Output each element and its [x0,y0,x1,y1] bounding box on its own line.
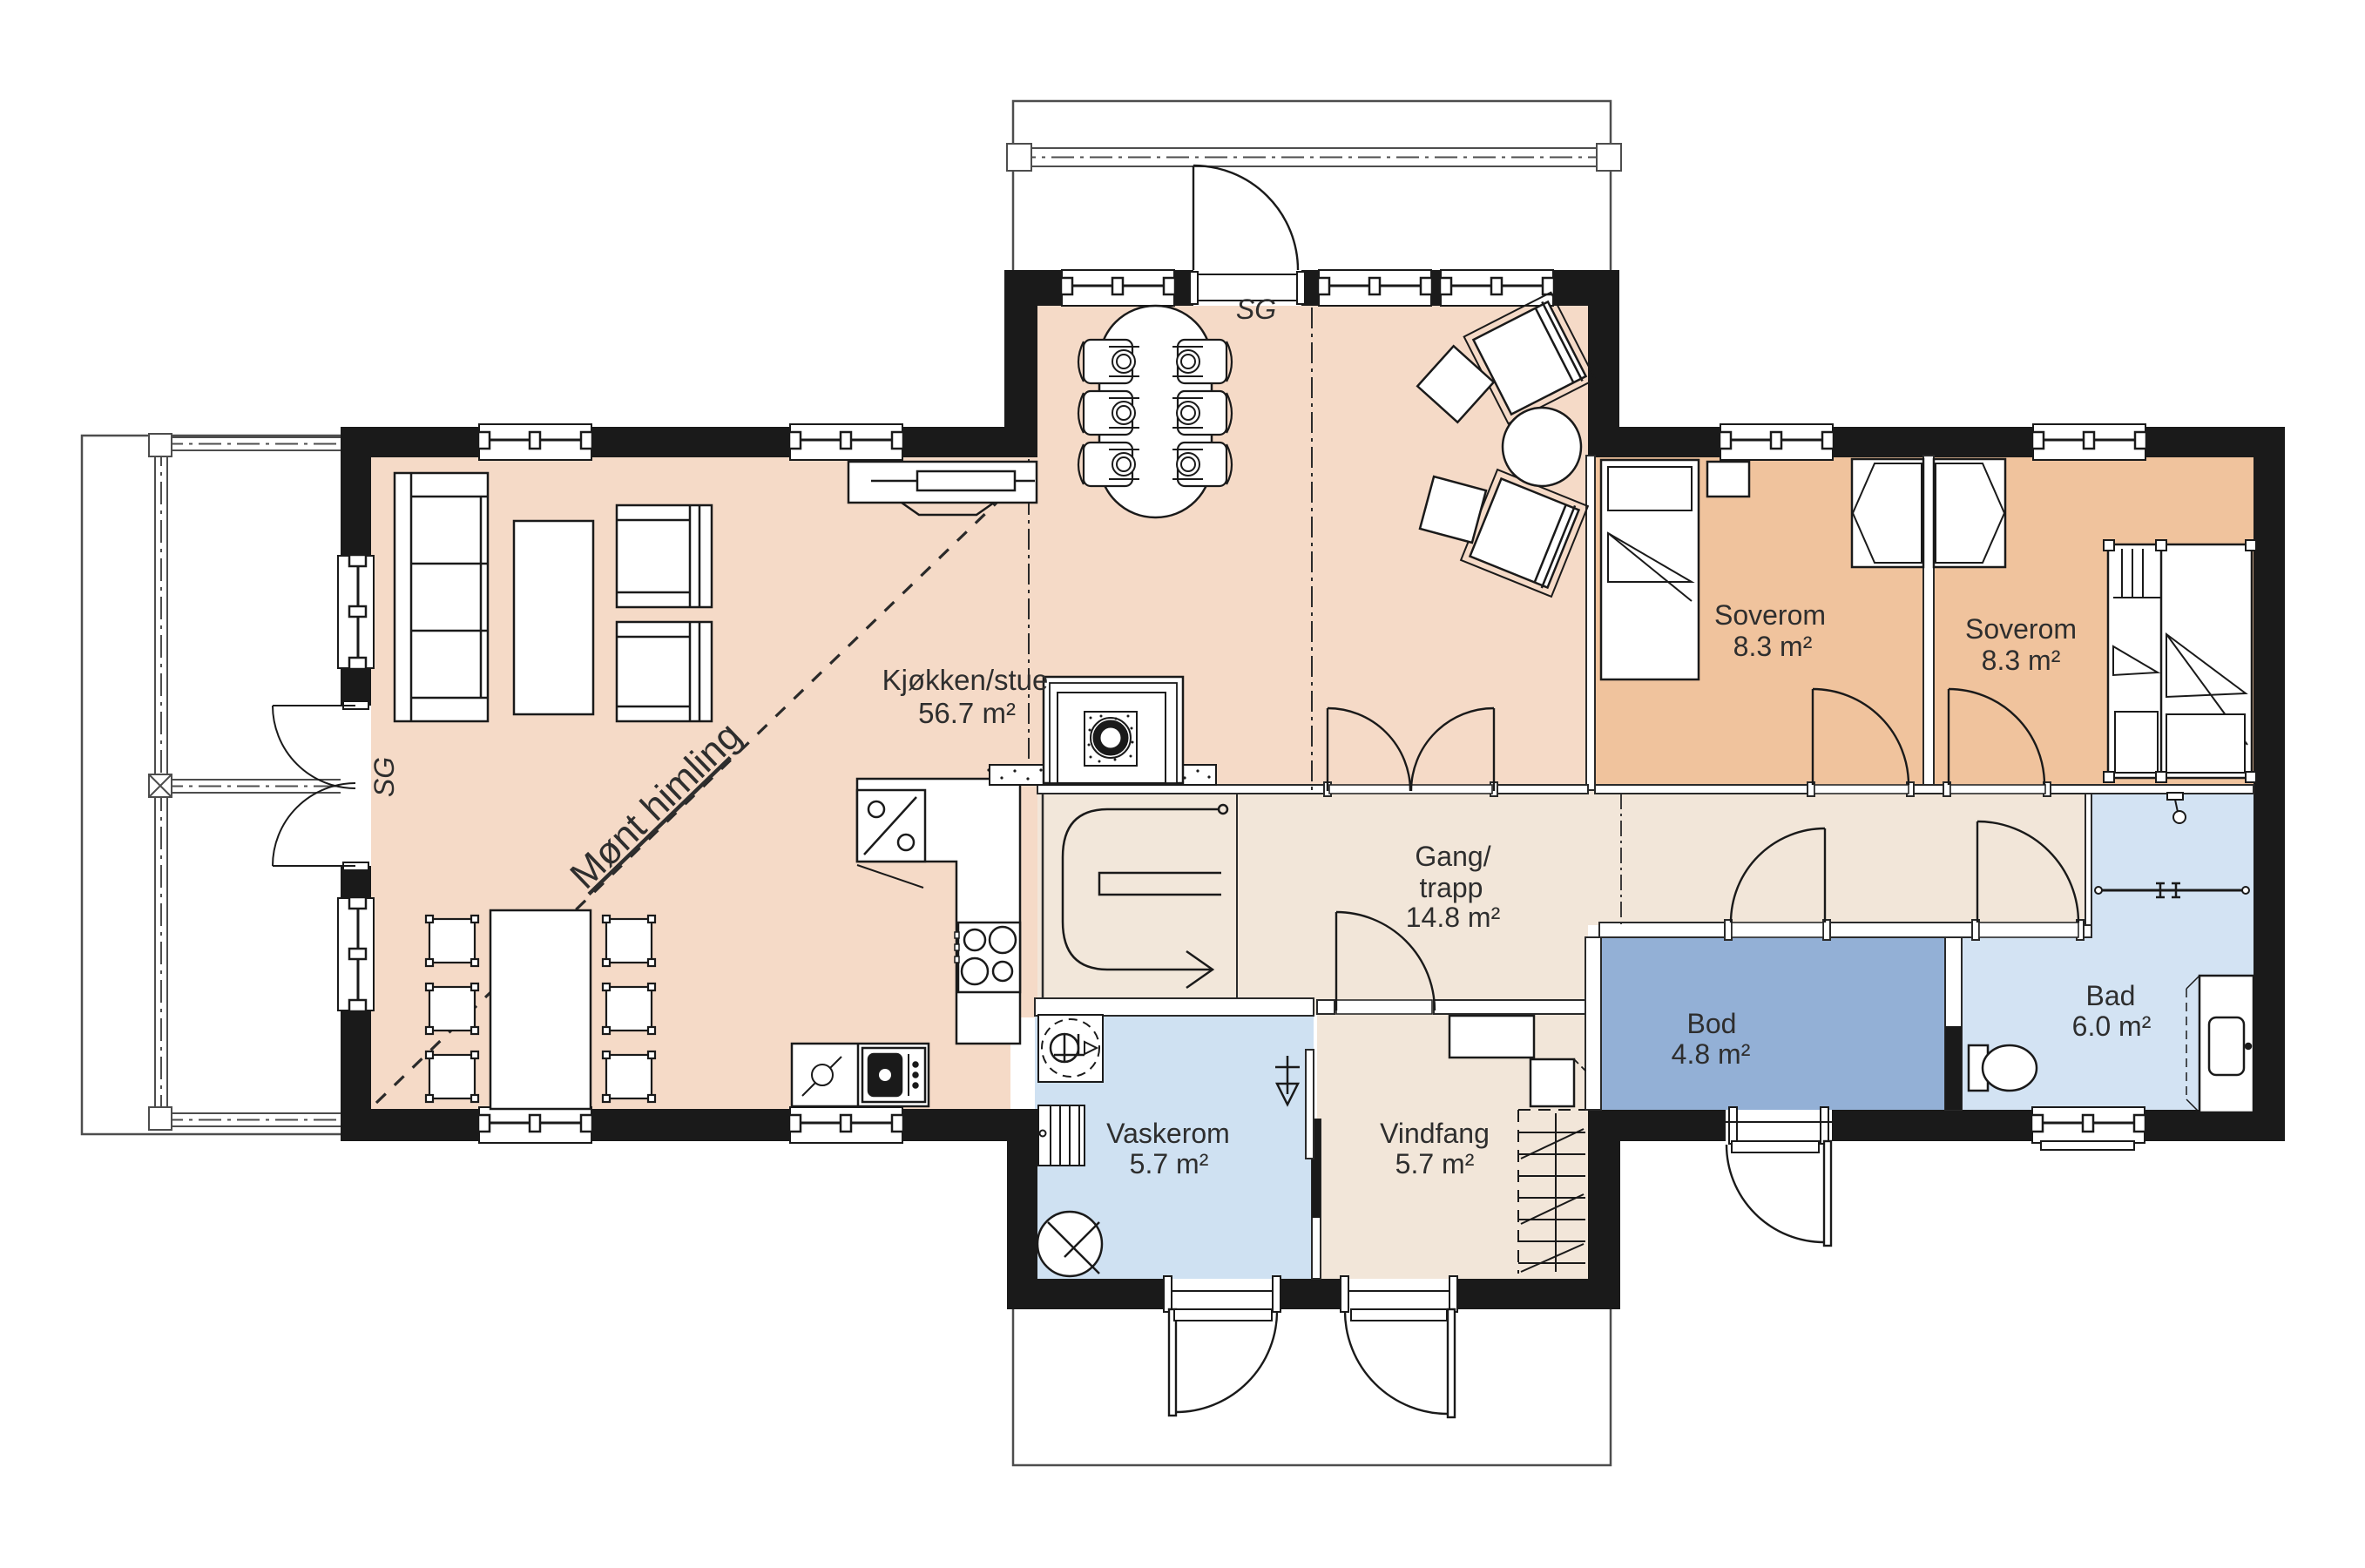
svg-text:6.0 m²: 6.0 m² [2072,1010,2152,1042]
svg-text:14.8 m²: 14.8 m² [1406,902,1501,933]
svg-text:trapp: trapp [1420,872,1483,903]
svg-text:Gang/: Gang/ [1415,841,1490,872]
svg-text:Kjøkken/stue: Kjøkken/stue [882,664,1049,696]
svg-text:4.8 m²: 4.8 m² [1672,1038,1751,1070]
svg-text:Soverom: Soverom [1965,613,2077,645]
svg-text:Bad: Bad [2086,980,2136,1011]
svg-text:Vaskerom: Vaskerom [1106,1118,1230,1149]
svg-text:8.3 m²: 8.3 m² [1733,631,1813,662]
svg-text:Bod: Bod [1687,1008,1737,1039]
svg-text:SG: SG [368,757,400,797]
svg-text:5.7 m²: 5.7 m² [1130,1148,1209,1179]
svg-text:56.7 m²: 56.7 m² [918,697,1016,729]
svg-text:SG: SG [1236,294,1276,325]
svg-text:5.7 m²: 5.7 m² [1395,1148,1475,1179]
svg-text:Vindfang: Vindfang [1380,1118,1490,1149]
svg-text:8.3 m²: 8.3 m² [1982,645,2061,676]
svg-text:Soverom: Soverom [1714,599,1826,631]
